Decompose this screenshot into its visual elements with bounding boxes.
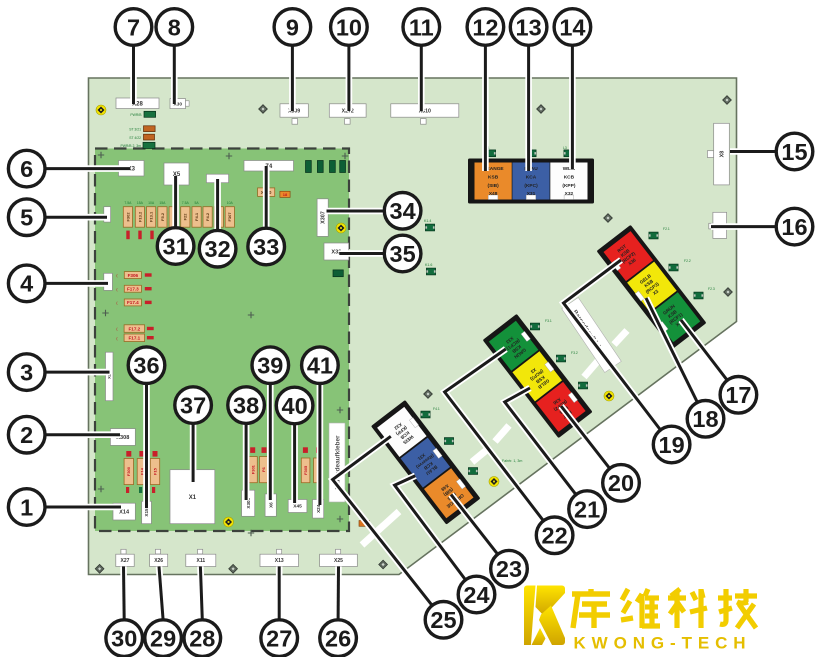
svg-text:F2.3: F2.3	[708, 287, 715, 291]
svg-text:40: 40	[282, 393, 308, 419]
svg-text:1: 1	[20, 494, 33, 520]
svg-text:37: 37	[180, 392, 206, 418]
svg-text:F2.2: F2.2	[684, 259, 691, 263]
svg-text:F17.4: F17.4	[127, 300, 139, 305]
svg-text:11: 11	[409, 14, 434, 40]
svg-text:18: 18	[283, 192, 288, 197]
svg-text:13: 13	[516, 14, 542, 40]
svg-text:F301: F301	[251, 464, 256, 474]
svg-text:7.5A: 7.5A	[182, 201, 190, 205]
svg-text:KWONG-TECH: KWONG-TECH	[574, 634, 752, 653]
svg-text:9: 9	[286, 14, 299, 40]
svg-text:28: 28	[189, 625, 215, 651]
svg-text:10: 10	[336, 14, 362, 40]
svg-text:X13: X13	[275, 558, 284, 564]
svg-text:31: 31	[163, 233, 189, 259]
svg-text:17: 17	[725, 382, 751, 408]
svg-text:39: 39	[257, 353, 283, 379]
svg-text:F306: F306	[128, 273, 139, 278]
svg-text:F13.2: F13.2	[137, 211, 142, 222]
svg-text:15A: 15A	[137, 201, 144, 205]
svg-text:7.5A: 7.5A	[124, 201, 132, 205]
svg-text:X25: X25	[334, 558, 343, 564]
svg-text:33: 33	[253, 234, 279, 260]
svg-text:Fahrtr. 1, 3m: Fahrtr. 1, 3m	[502, 459, 522, 463]
svg-text:L3: L3	[563, 146, 567, 150]
svg-text:22: 22	[542, 523, 568, 549]
svg-text:18: 18	[692, 406, 718, 432]
svg-text:8: 8	[168, 14, 181, 40]
svg-text:26: 26	[325, 625, 351, 651]
svg-text:16: 16	[781, 214, 807, 240]
svg-text:4: 4	[20, 271, 33, 297]
svg-text:F13.1: F13.1	[149, 211, 154, 222]
svg-text:X11: X11	[196, 558, 205, 564]
svg-text:5: 5	[20, 205, 33, 231]
svg-text:F6: F6	[261, 467, 266, 472]
svg-text:K1.6: K1.6	[425, 263, 432, 267]
svg-text:21: 21	[574, 496, 600, 522]
svg-text:F2.1: F2.1	[663, 227, 670, 231]
svg-text:F3.2: F3.2	[571, 351, 578, 355]
svg-text:F305: F305	[303, 465, 308, 475]
svg-text:19: 19	[659, 432, 685, 458]
svg-text:F307: F307	[227, 212, 232, 222]
svg-text:F300: F300	[126, 466, 131, 476]
svg-text:38: 38	[233, 392, 259, 418]
svg-text:6: 6	[20, 156, 33, 182]
svg-text:41: 41	[307, 353, 333, 379]
svg-text:36: 36	[133, 353, 159, 379]
svg-text:X8: X8	[719, 151, 725, 158]
svg-text:ST 3/21: ST 3/21	[129, 127, 141, 131]
svg-text:F17.2: F17.2	[128, 326, 140, 331]
svg-text:K1.4: K1.4	[424, 219, 431, 223]
svg-text:F4.1: F4.1	[433, 407, 440, 411]
svg-text:PWR/B: PWR/B	[130, 113, 142, 117]
svg-text:F15: F15	[152, 467, 157, 475]
svg-text:F4.2: F4.2	[205, 212, 210, 221]
svg-text:X6: X6	[268, 502, 273, 508]
svg-text:F4.1: F4.1	[194, 212, 199, 221]
svg-text:PWR/B 2, 3m: PWR/B 2, 3m	[120, 144, 141, 148]
svg-text:3: 3	[20, 359, 33, 385]
svg-text:34: 34	[390, 198, 416, 224]
svg-text:12: 12	[472, 14, 498, 40]
svg-text:23: 23	[496, 556, 522, 582]
svg-text:29: 29	[150, 625, 176, 651]
svg-text:X15: X15	[144, 508, 149, 517]
svg-text:X24: X24	[316, 504, 321, 513]
svg-text:ST 4/22: ST 4/22	[129, 136, 141, 140]
svg-text:35: 35	[390, 241, 416, 267]
svg-text:2: 2	[20, 422, 33, 448]
svg-text:15A: 15A	[159, 201, 166, 205]
svg-text:F17.1: F17.1	[128, 335, 140, 340]
svg-text:X14: X14	[119, 510, 130, 516]
svg-text:30: 30	[111, 625, 137, 651]
svg-text:F3.1: F3.1	[545, 319, 552, 323]
svg-text:32: 32	[205, 236, 231, 262]
svg-text:F5.2: F5.2	[160, 212, 165, 221]
svg-text:14: 14	[559, 14, 585, 40]
svg-text:X26: X26	[154, 558, 163, 564]
svg-text:F17.3: F17.3	[127, 286, 139, 291]
svg-text:15: 15	[781, 139, 807, 165]
svg-text:F22: F22	[183, 213, 188, 221]
svg-text:27: 27	[266, 625, 292, 651]
svg-text:24: 24	[463, 582, 489, 608]
svg-text:7: 7	[127, 14, 140, 40]
svg-text:25: 25	[430, 607, 456, 633]
svg-text:5A: 5A	[195, 201, 200, 205]
svg-text:X27: X27	[121, 558, 130, 564]
svg-text:10A: 10A	[227, 201, 234, 205]
svg-text:F302: F302	[125, 212, 130, 222]
svg-text:20: 20	[608, 470, 634, 496]
svg-text:X1: X1	[189, 495, 197, 501]
svg-text:10A: 10A	[148, 201, 155, 205]
svg-text:X45: X45	[293, 504, 302, 510]
svg-text:X307: X307	[321, 211, 327, 224]
